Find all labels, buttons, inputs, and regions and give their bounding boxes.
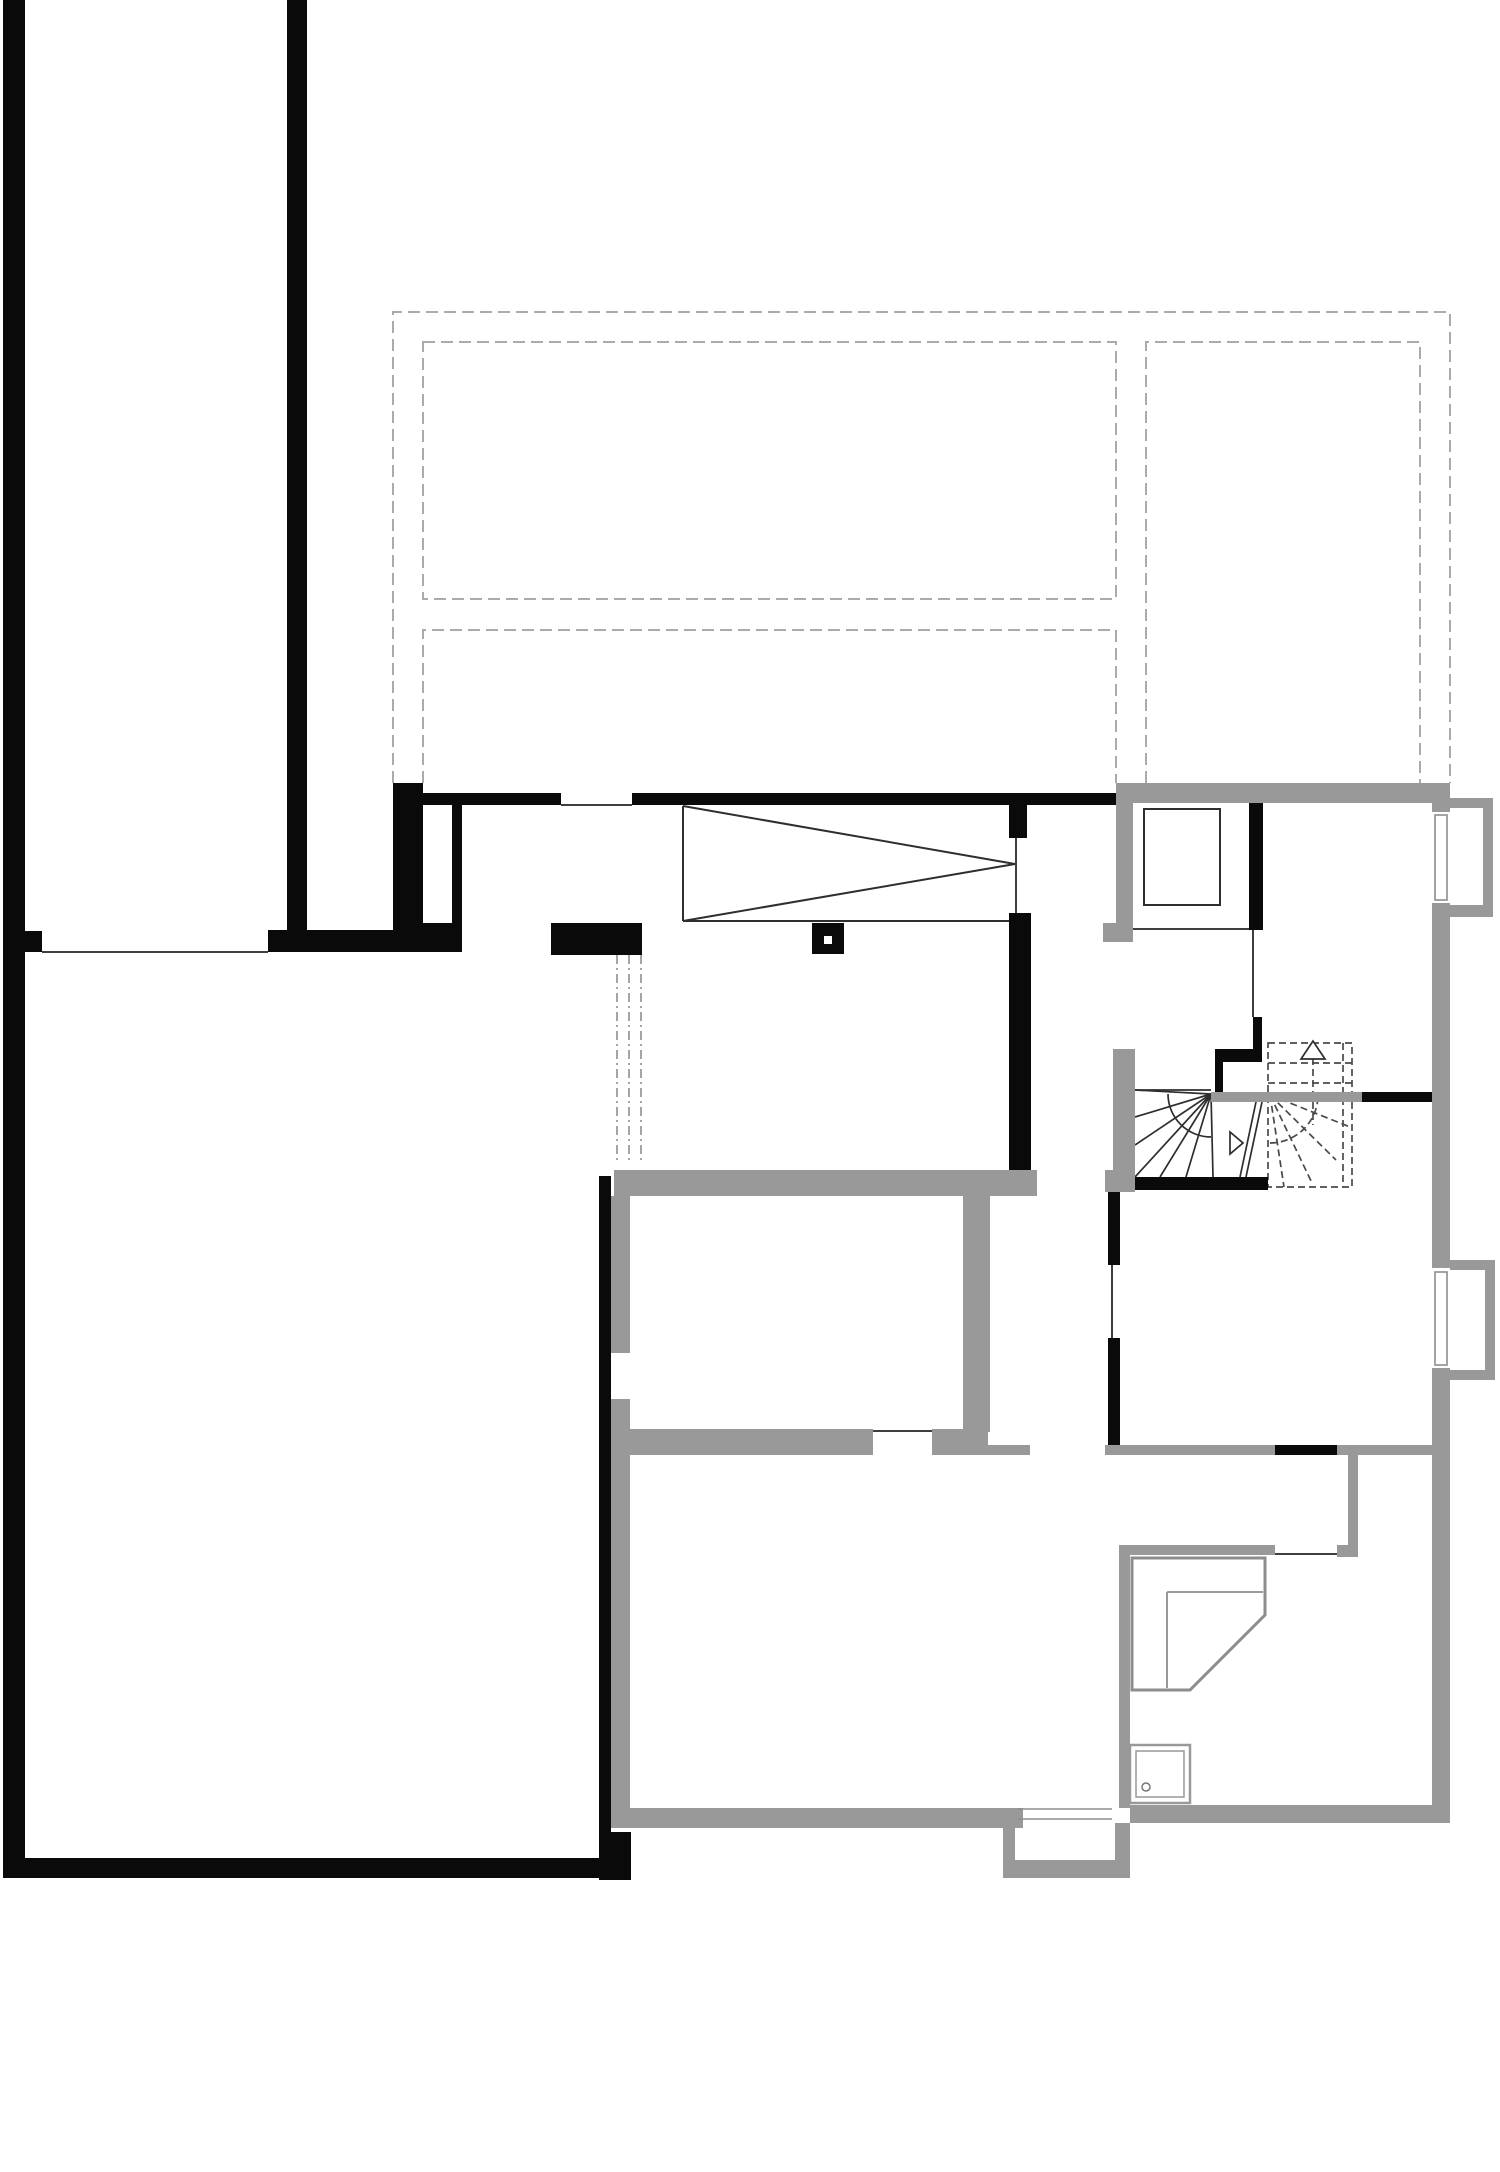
lining-left-lower bbox=[611, 1399, 630, 1808]
wall-hall-top-main bbox=[632, 793, 1116, 805]
wall-door-pier bbox=[932, 1429, 988, 1455]
wall-stair-top-gray bbox=[1211, 1092, 1362, 1102]
wall-corridor-c bbox=[1337, 1445, 1432, 1455]
wall-bath-top bbox=[1119, 1545, 1275, 1555]
wall-stair-left-foot bbox=[1105, 1170, 1135, 1192]
wall-top-right bbox=[1116, 783, 1450, 803]
vestibule-left bbox=[1003, 1828, 1015, 1878]
wall-right-room-left-a bbox=[1108, 1192, 1120, 1265]
plan-background bbox=[0, 0, 1500, 2172]
bay1-bottom bbox=[1450, 905, 1493, 917]
wall-right-outer-a bbox=[1432, 803, 1450, 812]
bay1-right bbox=[1483, 798, 1493, 917]
wall-hall-right-stub bbox=[1009, 803, 1027, 838]
wall-room-a-right bbox=[963, 1196, 990, 1432]
wall-left-outer bbox=[3, 0, 25, 1878]
floor-plan-page bbox=[0, 0, 1500, 2172]
wall-stair-entry bbox=[1249, 803, 1263, 930]
wall-pier-fill bbox=[423, 923, 462, 952]
wall-room-a-top bbox=[614, 1170, 1037, 1196]
column-core-hole bbox=[824, 936, 832, 944]
floor-plan-canvas bbox=[0, 0, 1500, 2172]
stair-zig-b bbox=[1215, 1049, 1262, 1062]
wall-right-outer-b bbox=[1432, 903, 1450, 1268]
wall-corridor-right bbox=[1348, 1455, 1358, 1547]
wall-stair-top-black bbox=[1362, 1092, 1432, 1102]
wall-middle-bottom bbox=[611, 1808, 1023, 1828]
vestibule-bottom bbox=[1015, 1860, 1130, 1878]
wall-shaft-foot bbox=[1103, 923, 1133, 942]
wall-corridor-black-seg bbox=[1275, 1445, 1337, 1455]
wall-room-a-bottom bbox=[611, 1429, 873, 1455]
wall-corridor-a bbox=[988, 1445, 1030, 1455]
wall-bath-corner bbox=[1337, 1545, 1358, 1557]
wall-shaft-left bbox=[1116, 803, 1133, 923]
wall-bath-left bbox=[1119, 1555, 1130, 1808]
wall-corridor-b bbox=[1105, 1445, 1275, 1455]
wall-pier-b bbox=[452, 805, 462, 923]
wall-block-left-room bbox=[551, 923, 642, 955]
wall-right-room-left-b bbox=[1108, 1338, 1120, 1445]
vestibule-right bbox=[1115, 1823, 1130, 1860]
wall-left-tab bbox=[25, 931, 42, 952]
wall-middle-left bbox=[599, 1176, 611, 1832]
wall-pier-a bbox=[393, 783, 423, 952]
bay2-bottom bbox=[1450, 1370, 1495, 1380]
stair-zig-c bbox=[1215, 1062, 1223, 1092]
wall-stair-bottom bbox=[1135, 1177, 1268, 1190]
lining-left-upper bbox=[611, 1196, 630, 1353]
wall-hall-right-main bbox=[1009, 913, 1031, 1170]
wall-bottom-outer bbox=[3, 1858, 599, 1878]
wall-hall-top-left bbox=[423, 793, 561, 805]
niche-cutout bbox=[423, 805, 452, 923]
wall-bath-bottom bbox=[1130, 1805, 1450, 1823]
wall-right-outer-c bbox=[1432, 1368, 1450, 1823]
wall-court-right bbox=[287, 0, 307, 930]
bay2-right bbox=[1485, 1260, 1495, 1380]
wall-bottom-corner-block bbox=[599, 1832, 631, 1880]
